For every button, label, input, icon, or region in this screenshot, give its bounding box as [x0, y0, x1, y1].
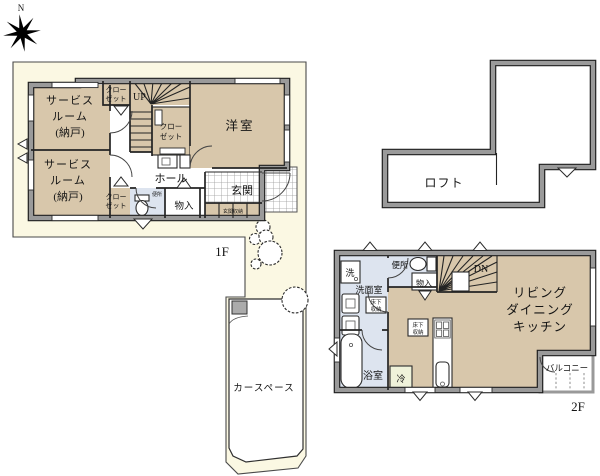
compass-star [3, 14, 41, 52]
room-label: ゼット [160, 131, 183, 141]
room-label: バルコニー [546, 363, 588, 373]
compass-north-label: N [18, 3, 25, 13]
room-label: 収納 [412, 328, 424, 336]
room-label: 床下 [412, 321, 424, 329]
room-label: ゼット [106, 94, 127, 103]
loft-vent-triangle [558, 168, 576, 177]
room-label: 床下 [370, 298, 382, 306]
room-label: クロー [160, 122, 183, 131]
room-label: 玄関収納 [223, 208, 243, 215]
room-label: キッチン [513, 320, 567, 334]
floor2-label: 2F [571, 399, 585, 414]
floor1-label: 1F [215, 244, 229, 259]
loft-label: ロフト [424, 176, 463, 190]
floorplan-image: N 1F カースペース [0, 0, 600, 476]
toilet-icon-2f [410, 257, 436, 271]
room-label: (納戸) [53, 190, 83, 203]
loft-interior [385, 63, 593, 205]
room-label: 玄関 [231, 183, 253, 197]
room-label: 洗 [345, 267, 354, 278]
toilet-icon [135, 195, 149, 216]
car-space-area [229, 299, 303, 462]
room-label: 収納 [370, 305, 382, 313]
floor1-plan: サービス ルーム (納戸) サービス ルーム (納戸) クロー ゼット UP ク… [18, 78, 297, 229]
room-label: リビング [513, 286, 567, 300]
room-label: クロー [106, 193, 127, 201]
room-label: ダイニング [506, 302, 574, 317]
floorplan-page: N 1F カースペース [0, 0, 600, 476]
loft-plan: ロフト [385, 63, 593, 205]
room-label: DN [474, 264, 488, 275]
room-label: 洋室 [225, 118, 254, 133]
room-label: ゼット [106, 201, 127, 210]
room-label: 浴室 [363, 369, 383, 382]
kitchen-counter-icon [433, 318, 452, 388]
room-label: ホール [155, 172, 188, 185]
room-label: (納戸) [55, 126, 85, 139]
stair-landing [452, 272, 469, 291]
room-label: サービス [46, 94, 94, 107]
room-label: 冷 [396, 373, 405, 384]
room-label: UP [133, 92, 146, 103]
room-label: サービス [44, 158, 92, 171]
room-label: 物入 [416, 278, 432, 288]
hall-cabinet [158, 155, 190, 168]
room-label: ルーム [50, 174, 86, 187]
room-label: 便所 [391, 260, 409, 270]
room-label: 洗面室 [355, 284, 382, 295]
room-label: クロー [106, 86, 127, 94]
room-label: ルーム [52, 110, 88, 123]
room-label: 物入 [174, 200, 194, 212]
room-label: 便所 [152, 191, 162, 198]
compass-rose-icon: N [3, 3, 41, 52]
car-space-label: カースペース [233, 383, 294, 394]
entrance-porch [262, 167, 297, 212]
floor2-plan: 洗 洗面室 便所 物入 DN リビング ダイニング キッチン 床下 収納 床下 … [329, 242, 596, 414]
utility-box [232, 301, 247, 314]
bathtub-icon [341, 334, 362, 388]
